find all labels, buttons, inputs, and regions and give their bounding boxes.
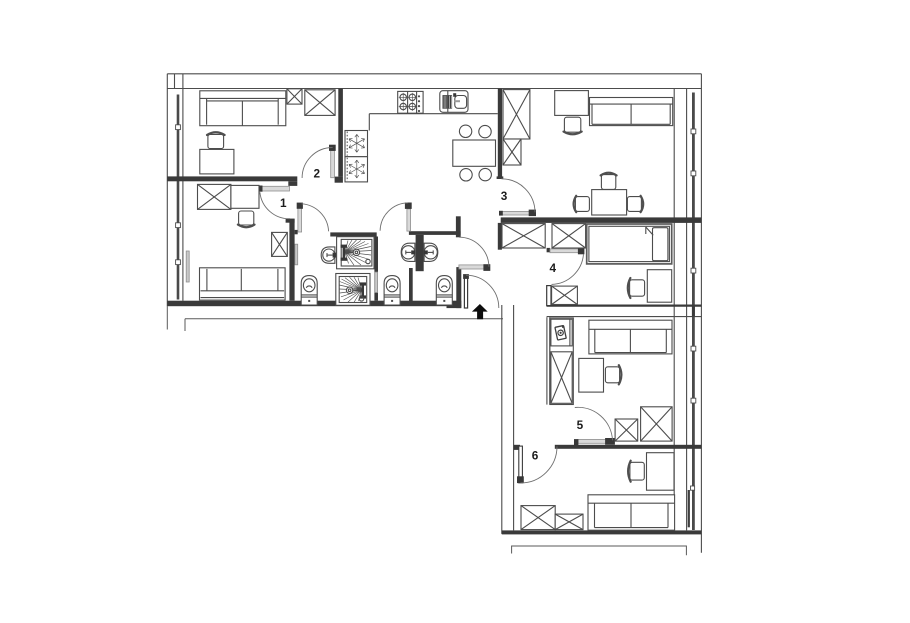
- svg-text:5: 5: [577, 418, 584, 432]
- svg-text:4: 4: [550, 261, 557, 275]
- svg-text:3: 3: [501, 189, 508, 203]
- svg-text:1: 1: [280, 196, 287, 210]
- svg-text:6: 6: [532, 449, 539, 463]
- svg-text:2: 2: [314, 166, 321, 180]
